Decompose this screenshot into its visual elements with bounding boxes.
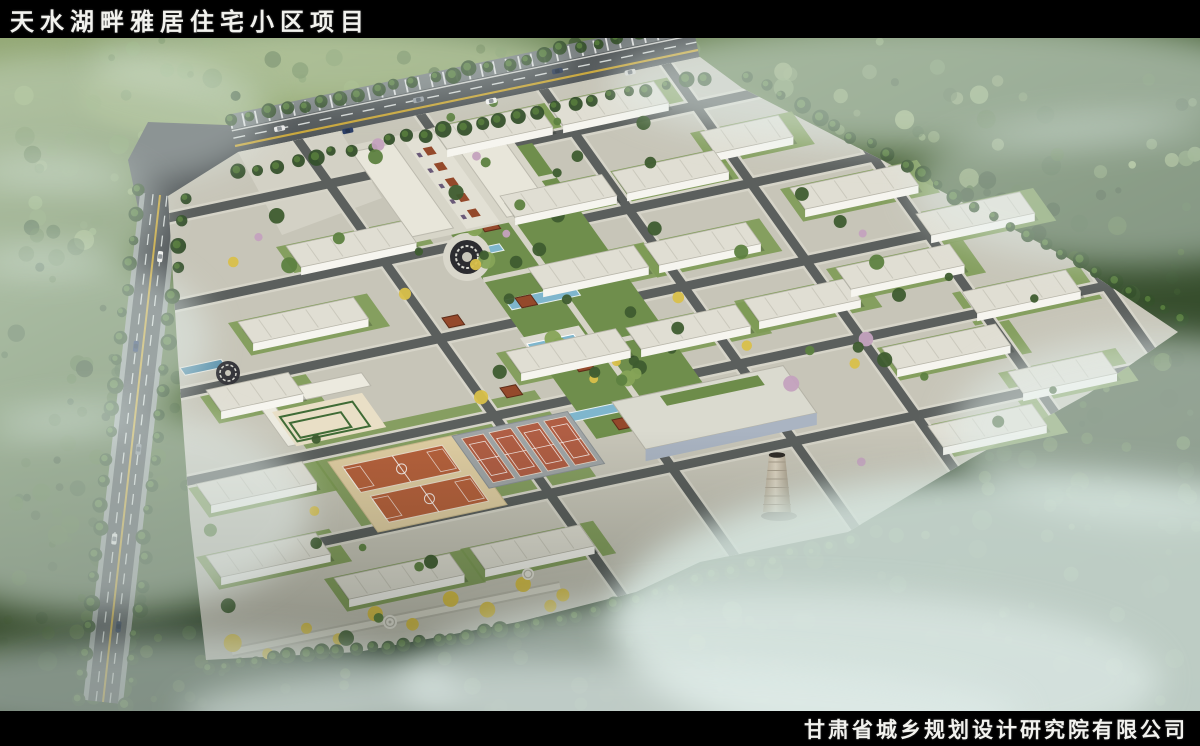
credit-bar: 甘肃省城乡规划设计研究院有限公司 — [0, 711, 1200, 746]
company-credit: 甘肃省城乡规划设计研究院有限公司 — [804, 714, 1200, 744]
render-canvas: 天水湖畔雅居住宅小区项目 甘肃省城乡规划设计研究院有限公司 — [0, 0, 1200, 746]
page-title: 天水湖畔雅居住宅小区项目 — [0, 2, 370, 37]
title-bar: 天水湖畔雅居住宅小区项目 — [0, 0, 1200, 38]
site-plan-rendering — [0, 0, 1200, 746]
